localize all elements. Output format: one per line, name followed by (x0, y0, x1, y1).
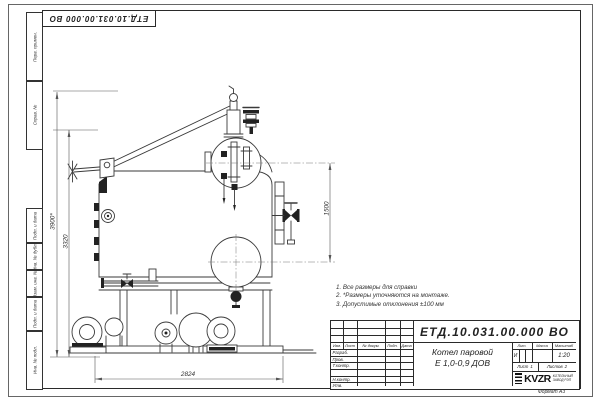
scale-label: Масштаб (552, 342, 576, 349)
sheets-value: 2 (565, 364, 567, 369)
row-utv: Утв. (331, 382, 359, 389)
col-docnum: № докум. (357, 342, 385, 349)
product-name-line1: Котел паровой (432, 347, 493, 358)
company-name-line2: ЗАВОД РЭП (553, 379, 573, 383)
row-razrab: Разраб. (331, 349, 359, 356)
dim-base-length: 2824 (170, 371, 206, 378)
dim-drum-to-manhole: 1500 (324, 195, 331, 223)
notes-block: 1. Все размеры для справки 2. *Размеры у… (336, 284, 450, 309)
col-data: Дата (400, 342, 413, 349)
safety-valve (224, 86, 243, 137)
lit-value: И (512, 349, 519, 362)
title-block: ЕТД.10.031.00.000 ВО Изм. Лист № докум. … (330, 320, 580, 390)
sheet-value: 1 (530, 364, 532, 369)
dim-overall-height: 3900* (50, 208, 57, 236)
kvzr-logo-icon (515, 373, 522, 384)
format-label: Формат А3 (523, 389, 580, 395)
note-line: 3. Допустимые отклонения ±100 мм (336, 301, 450, 309)
company-name: КОТЕЛЬНЫЙ ЗАВОД РЭП (553, 375, 573, 383)
row-tkontr: Т.контр. (331, 362, 359, 369)
mass-label: Масса (532, 342, 552, 349)
boiler-linework (68, 86, 316, 353)
col-izm: Изм. (331, 342, 343, 349)
kvzr-logo-text: KVZR (524, 373, 551, 385)
drawing-sheet: Перв. примен. Справ. № Подп. и дата Инв.… (0, 0, 600, 400)
doc-number-cell: ЕТД.10.031.00.000 ВО (413, 321, 576, 342)
note-line: 1. Все размеры для справки (336, 284, 450, 292)
note-line: 2. *Размеры уточняются на монтаже. (336, 292, 450, 300)
lit-label: Лит. (512, 342, 532, 349)
sheets-label: Листов (547, 364, 563, 369)
sheet-label: Лист (517, 364, 528, 369)
sheet-cell: Лист 1 (512, 362, 538, 371)
col-list: Лист (343, 342, 357, 349)
steam-valve (243, 108, 259, 135)
mass-value (532, 349, 552, 362)
company-logo-cell: KVZR КОТЕЛЬНЫЙ ЗАВОД РЭП (512, 371, 576, 386)
product-name-line2: Е 1,0-0,9 ДОВ (435, 358, 490, 369)
product-name-cell: Котел паровой Е 1,0-0,9 ДОВ (413, 342, 512, 391)
dim-boiler-height: 3320 (63, 228, 70, 256)
scale-value: 1:20 (552, 349, 576, 362)
sheets-cell: Листов 2 (538, 362, 576, 371)
drain-valve (231, 291, 242, 302)
col-podp: Подп. (385, 342, 400, 349)
